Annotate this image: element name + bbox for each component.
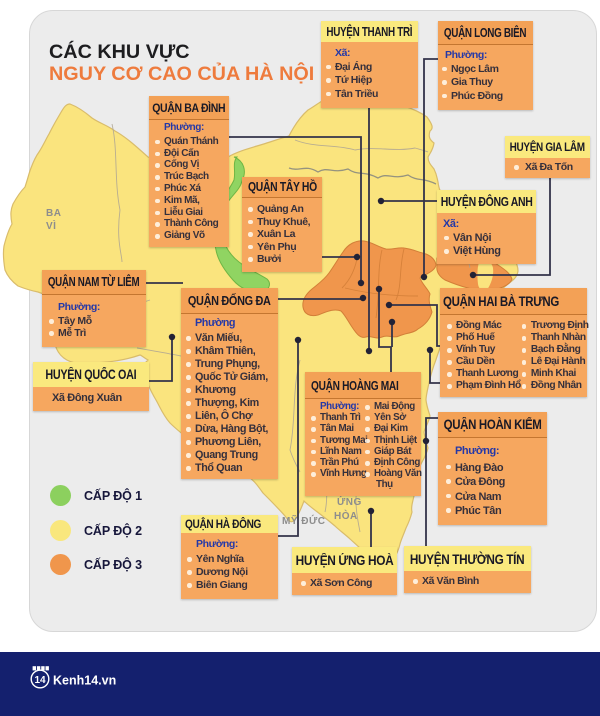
- svg-text:BA: BA: [46, 208, 61, 219]
- svg-text:ỨNG: ỨNG: [337, 495, 362, 508]
- svg-text:14: 14: [34, 675, 46, 686]
- svg-text:MỸ ĐỨC: MỸ ĐỨC: [282, 514, 326, 527]
- svg-text:Kenh14.vn: Kenh14.vn: [53, 674, 116, 688]
- svg-text:HÒA: HÒA: [334, 509, 358, 522]
- svg-text:VÌ: VÌ: [46, 219, 56, 232]
